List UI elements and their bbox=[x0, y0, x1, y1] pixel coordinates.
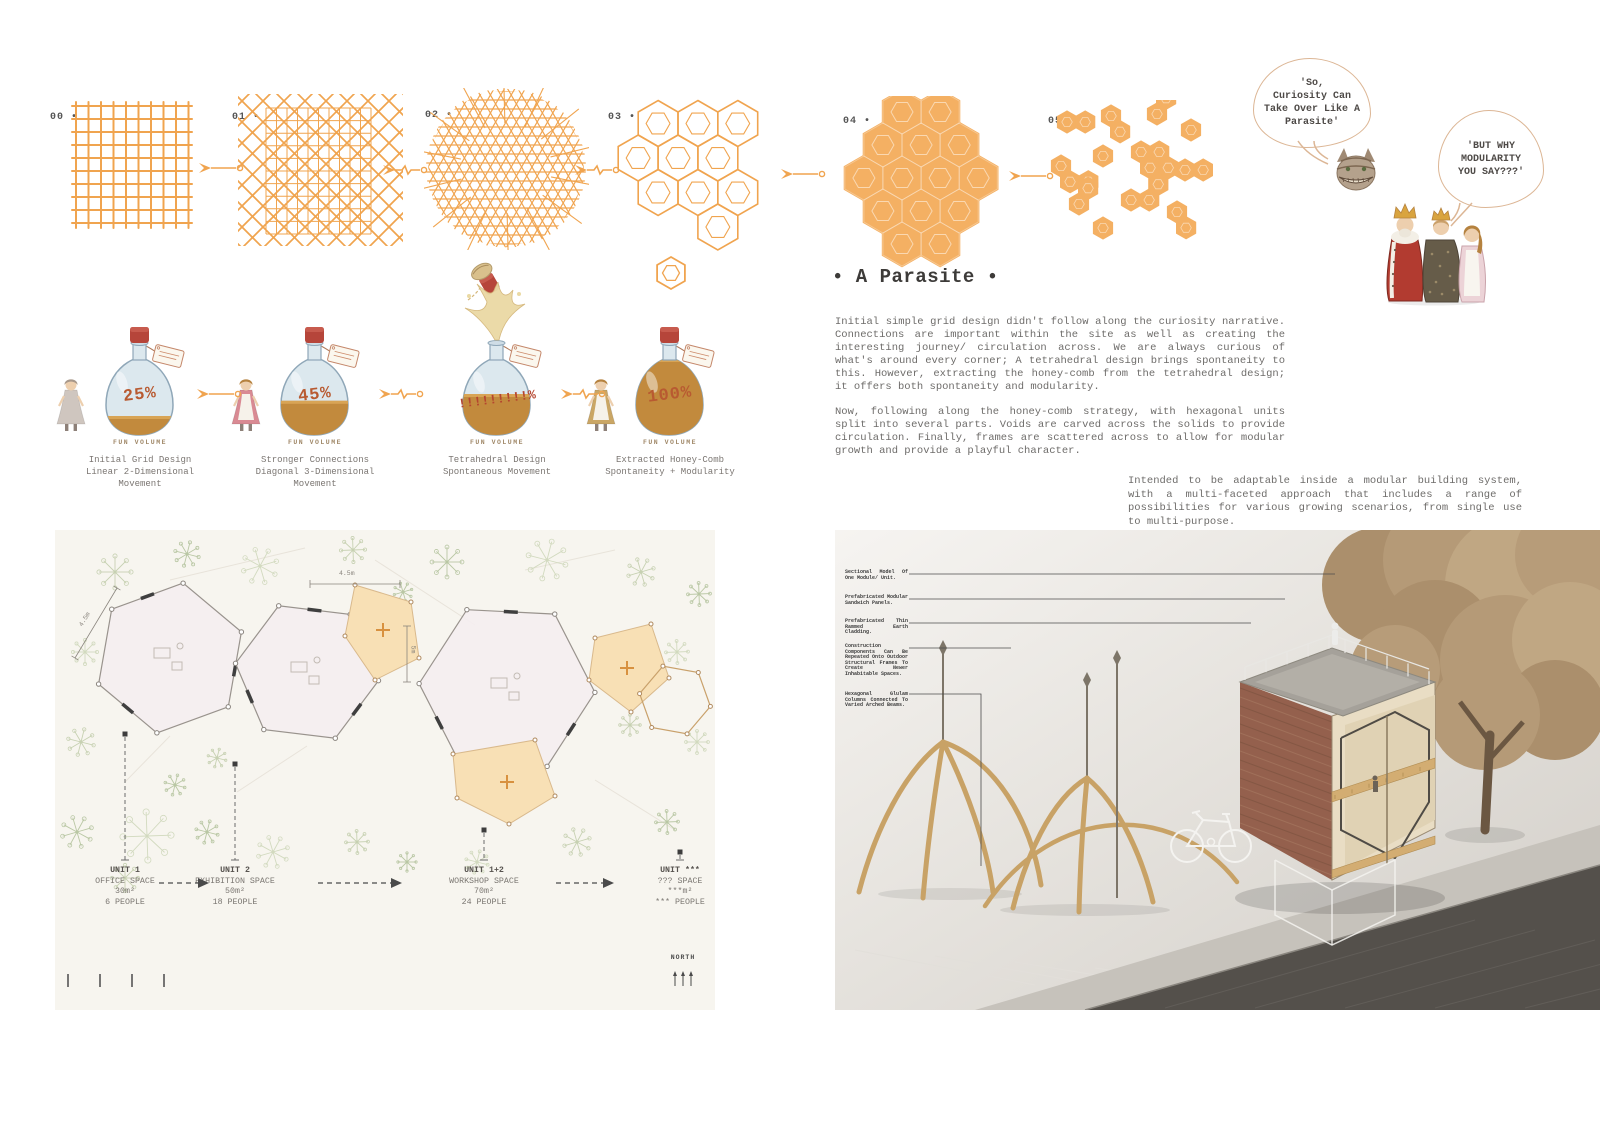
annotation-earth-cladding: Prefabricated Thin Rammed Earth Cladding… bbox=[845, 619, 908, 636]
side-note: Intended to be adaptable inside a modula… bbox=[1128, 475, 1522, 529]
process-arrow-icon bbox=[196, 386, 244, 402]
process-arrow-icon bbox=[560, 386, 608, 402]
process-arrow-icon bbox=[378, 386, 426, 402]
render-panel: Sectional Model Of One Module/ Unit. Pre… bbox=[835, 530, 1600, 1010]
section-title: • A Parasite • bbox=[832, 266, 999, 288]
render-illustration bbox=[835, 530, 1600, 1010]
dimension-label: 4.5m bbox=[339, 570, 355, 577]
body-paragraph-2: Now, following along the honey-comb stra… bbox=[835, 406, 1285, 458]
diagonal-grid-diagram bbox=[238, 94, 403, 246]
honeycomb-scattered-diagram bbox=[1045, 100, 1213, 252]
annotation-glulam-columns: Hexagonal Glulam Columns Connected To Va… bbox=[845, 692, 908, 709]
presentation-board: 00 • 01 • 02 • 03 • 04 • 05 • 'So, Curio… bbox=[0, 0, 1600, 1132]
unit-label-3: UNIT 1+2 WORKSHOP SPACE 70m² 24 PEOPLE bbox=[424, 866, 544, 908]
process-arrow-icon bbox=[382, 162, 430, 178]
annotation-sectional-model: Sectional Model Of One Module/ Unit. bbox=[845, 570, 908, 581]
annotation-sandwich-panels: Prefabricated Modular Sandwich Panels. bbox=[845, 595, 908, 606]
potion-step-1: 25% FUN VOLUME Initial Grid Design Linea… bbox=[55, 280, 225, 485]
cheshire-cat-illustration bbox=[1330, 146, 1382, 192]
site-plan-drawing bbox=[55, 530, 715, 1010]
speech-bubble-tail bbox=[1292, 140, 1332, 170]
potion-step-2: 45% FUN VOLUME Stronger Connections Diag… bbox=[230, 280, 400, 485]
unit-label-4: UNIT *** ??? SPACE ***m² *** PEOPLE bbox=[620, 866, 740, 908]
north-label: NORTH bbox=[653, 954, 713, 961]
fun-volume-label: FUN VOLUME bbox=[585, 439, 755, 446]
potion-bottle bbox=[622, 282, 717, 440]
process-arrow-icon bbox=[1008, 168, 1056, 184]
fun-volume-label: FUN VOLUME bbox=[412, 439, 582, 446]
growth-arrow-icon bbox=[317, 878, 403, 888]
body-paragraph-1: Initial simple grid design didn't follow… bbox=[835, 316, 1285, 394]
king-queen-alice-illustration bbox=[1380, 184, 1488, 306]
potion-step-4: 100% FUN VOLUME Extracted Honey-Comb Spo… bbox=[585, 280, 755, 485]
tetrahedral-mesh-diagram bbox=[424, 88, 589, 250]
process-arrow-icon bbox=[198, 160, 246, 176]
potion-caption: Extracted Honey-Comb Spontaneity + Modul… bbox=[585, 454, 755, 478]
growth-arrow-icon bbox=[158, 878, 210, 888]
potion-bottle-exploding bbox=[449, 282, 544, 440]
potion-caption: Initial Grid Design Linear 2-Dimensional… bbox=[55, 454, 225, 490]
honeycomb-solid-diagram bbox=[840, 96, 1008, 270]
site-plan-panel: 4.5m 4.5m 5m UNIT 1 OFFICE SPACE 30m² 6 … bbox=[55, 530, 715, 1010]
growth-arrow-icon bbox=[555, 878, 615, 888]
annotation-construction: Construction Components Can Be Repeated … bbox=[845, 644, 908, 678]
potion-step-3: !!!!!!!!!% FUN VOLUME Tetrahedral Design… bbox=[412, 280, 582, 485]
potion-caption: Tetrahedral Design Spontaneous Movement bbox=[412, 454, 582, 478]
dimension-label: 5m bbox=[409, 646, 416, 654]
grid-diagram bbox=[68, 96, 196, 234]
honeycomb-outline-diagram bbox=[606, 88, 778, 260]
fun-volume-label: FUN VOLUME bbox=[230, 439, 400, 446]
fun-volume-label: FUN VOLUME bbox=[55, 439, 225, 446]
potion-bottle bbox=[267, 282, 362, 440]
process-arrow-icon bbox=[574, 162, 622, 178]
potion-bottle bbox=[92, 282, 187, 440]
speech-bubble-curiosity: 'So, Curiosity Can Take Over Like A Para… bbox=[1253, 58, 1371, 148]
process-arrow-icon bbox=[780, 166, 828, 182]
potion-caption: Stronger Connections Diagonal 3-Dimensio… bbox=[230, 454, 400, 490]
